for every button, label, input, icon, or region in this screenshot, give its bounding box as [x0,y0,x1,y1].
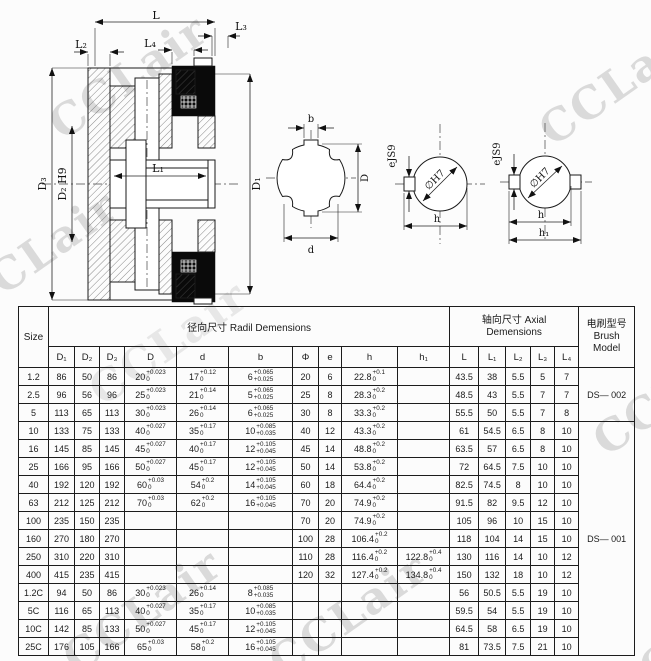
dim-label-L: L [152,9,160,22]
value-cell: 19 [531,584,555,602]
value-cell: 7.5 [506,638,531,656]
dim-label-L4: L₄ [144,37,156,50]
value-cell: 85 [75,620,100,638]
value-cell: 20 [319,512,342,530]
value-cell: 132 [479,566,506,584]
value-cell [398,620,450,638]
value-cell: 133 [100,620,125,638]
value-cell: 26+0.140 [177,584,229,602]
value-cell [342,584,398,602]
value-cell [293,638,319,656]
value-cell: 166 [100,458,125,476]
value-cell [177,548,229,566]
value-cell [293,620,319,638]
value-cell: 176 [49,638,75,656]
value-cell: 50+0.0270 [125,620,177,638]
value-cell: 55.5 [450,404,479,422]
value-cell: 5.5 [506,584,531,602]
value-cell: 82.5 [450,476,479,494]
size-cell: 16 [19,440,49,458]
table-row: 101337513340+0.027035+0.17010+0.085+0.03… [19,422,635,440]
value-cell: 40 [293,422,319,440]
value-cell: 18 [506,566,531,584]
column-header: h [342,347,398,368]
table-row: 10C1428513350+0.027045+0.17012+0.105+0.0… [19,620,635,638]
value-cell: 130 [450,548,479,566]
dim-label-h: h [538,210,545,221]
dim-label-D: D [360,174,371,182]
size-cell: 10C [19,620,49,638]
value-cell: 20 [319,494,342,512]
value-cell: 6+0.065+0.025 [229,404,293,422]
value-cell: 14 [506,548,531,566]
value-cell: 6.5 [506,422,531,440]
value-cell: 220 [75,548,100,566]
value-cell [229,512,293,530]
value-cell: 133 [100,422,125,440]
value-cell: 28 [319,530,342,548]
value-cell: 8+0.085+0.035 [229,584,293,602]
value-cell: 74.9+0.20 [342,512,398,530]
value-cell: 54.5 [479,422,506,440]
size-cell: 5C [19,602,49,620]
value-cell [229,548,293,566]
table-row: 5C1166511340+0.027035+0.17010+0.085+0.03… [19,602,635,620]
value-cell: 113 [100,602,125,620]
header-axial-line1: 轴向尺寸 Axial [482,315,546,326]
value-cell: 10 [555,530,579,548]
value-cell: 134.8+0.40 [398,566,450,584]
table-row: 25031022031011028116.4+0.20122.8+0.40130… [19,548,635,566]
value-cell [125,512,177,530]
value-cell: 17+0.120 [177,368,229,386]
table-row: 4019212019260+0.03054+0.2014+0.105+0.045… [19,476,635,494]
table-row: 2.596569625+0.023021+0.1405+0.065+0.0252… [19,386,635,404]
size-cell: 1.2C [19,584,49,602]
value-cell: 120 [293,566,319,584]
value-cell: 56 [450,584,479,602]
value-cell: 10 [506,512,531,530]
table-row: 16027018027010028106.4+0.20118104141510 [19,530,635,548]
size-cell: 2.5 [19,386,49,404]
value-cell [125,530,177,548]
value-cell: 10 [555,458,579,476]
value-cell: 30 [293,404,319,422]
value-cell: 12 [555,548,579,566]
value-cell: 113 [49,404,75,422]
value-cell [293,602,319,620]
value-cell: 65 [75,602,100,620]
brush-braid-lower [181,260,196,272]
dim-label-D3: D₃ [36,177,49,190]
value-cell: 48.8+0.20 [342,440,398,458]
column-header: L₄ [555,347,579,368]
sliding-sleeve [126,140,146,228]
value-cell [342,638,398,656]
value-cell: 28.3+0.20 [342,386,398,404]
value-cell [398,386,450,404]
value-cell: 86 [100,368,125,386]
value-cell: 5+0.065+0.025 [229,386,293,404]
value-cell: 56 [75,386,100,404]
value-cell [177,530,229,548]
value-cell: 50 [479,404,506,422]
value-cell: 10 [555,602,579,620]
web-section-lower [110,220,135,282]
dimensions-table: Size 径向尺寸 Radil Demensions 轴向尺寸 Axial De… [18,306,635,656]
value-cell: 104 [479,530,506,548]
value-cell: 270 [100,530,125,548]
value-cell [229,566,293,584]
keyway-bore-drawing-double: ∅H7 eJS9 h h₁ [492,118,627,273]
column-header: Φ [293,347,319,368]
value-cell: 118 [450,530,479,548]
value-cell: 45 [293,440,319,458]
value-cell: 5.5 [506,368,531,386]
value-cell: 35+0.170 [177,422,229,440]
value-cell [398,584,450,602]
value-cell: 12 [555,566,579,584]
dim-label-h: h [434,214,441,225]
header-brush-model: 电刷型号 Brush Model [579,307,635,368]
value-cell: 10 [531,458,555,476]
value-cell: 8 [319,386,342,404]
value-cell: 10 [555,512,579,530]
value-cell: 150 [75,512,100,530]
value-cell [398,602,450,620]
value-cell: 85 [75,440,100,458]
value-cell [125,548,177,566]
value-cell: 45+0.170 [177,458,229,476]
value-cell: 43.5 [450,368,479,386]
value-cell: 10 [555,440,579,458]
header-axial: 轴向尺寸 Axial Demensions [450,307,579,347]
value-cell: 235 [49,512,75,530]
value-cell: 38 [479,368,506,386]
header-brush-line1: 电刷型号 [587,319,627,330]
coupling-datasheet-page: CCLair CCLair CCLair CCLair CCLair CCLai… [0,0,651,661]
value-cell: 14+0.105+0.045 [229,476,293,494]
value-cell: 54 [479,602,506,620]
dim-label-h1: h₁ [539,228,549,239]
value-cell: 192 [49,476,75,494]
size-cell: 25 [19,458,49,476]
value-cell: 35+0.170 [177,602,229,620]
column-header: D₃ [100,347,125,368]
value-cell: 54+0.20 [177,476,229,494]
value-cell: 82 [479,494,506,512]
value-cell: 50.5 [479,584,506,602]
value-cell: 33.3+0.20 [342,404,398,422]
table-row: 40041523541512032127.4+0.20134.8+0.40150… [19,566,635,584]
size-cell: 250 [19,548,49,566]
value-cell: 270 [49,530,75,548]
web-section-upper [110,86,135,148]
brush-braid-upper [181,96,196,108]
value-cell: 25+0.0230 [125,386,177,404]
value-cell: 8 [555,404,579,422]
keyway-tab-right [570,175,581,189]
value-cell [398,638,450,656]
value-cell [398,422,450,440]
value-cell: 150 [450,566,479,584]
value-cell: 19 [531,620,555,638]
value-cell: 6.5 [506,620,531,638]
column-header: b [229,347,293,368]
value-cell: 50 [75,584,100,602]
value-cell: 8 [531,422,555,440]
value-cell: 57 [479,440,506,458]
value-cell: 15 [531,512,555,530]
value-cell: 7.5 [506,458,531,476]
dim-label-L1: L₁ [152,162,164,175]
keyway-bore-drawing-single: ∅H7 eJS9 h [383,118,501,263]
value-cell: 100 [293,530,319,548]
value-cell [398,368,450,386]
value-cell [398,404,450,422]
flange-section [88,68,110,300]
header-axial-line2: Demensions [486,327,542,338]
value-cell: 116.4+0.20 [342,548,398,566]
value-cell: 50 [293,458,319,476]
size-cell: 160 [19,530,49,548]
value-cell: 12+0.105+0.045 [229,620,293,638]
value-cell: 96 [479,512,506,530]
value-cell: 16+0.105+0.045 [229,638,293,656]
value-cell: 95 [75,458,100,476]
value-cell: 116 [49,602,75,620]
value-cell: 59.5 [450,602,479,620]
value-cell: 74.9+0.20 [342,494,398,512]
value-cell [229,530,293,548]
bottom-cap [194,298,212,304]
value-cell [177,566,229,584]
value-cell: 75 [75,422,100,440]
value-cell: 86 [49,368,75,386]
value-cell: 25 [293,386,319,404]
value-cell: 192 [100,476,125,494]
size-cell: 400 [19,566,49,584]
value-cell: 18 [319,476,342,494]
value-cell: 30+0.0230 [125,584,177,602]
value-cell: 212 [100,494,125,512]
table-row: 51136511330+0.023026+0.1406+0.065+0.0253… [19,404,635,422]
value-cell [125,566,177,584]
value-cell: 65+0.030 [125,638,177,656]
value-cell: 43.3+0.20 [342,422,398,440]
column-header: e [319,347,342,368]
dim-label-L2: L₂ [75,38,87,51]
value-cell: 10 [555,584,579,602]
value-cell: 40+0.0270 [125,602,177,620]
value-cell: 212 [49,494,75,512]
value-cell [293,584,319,602]
value-cell: 14 [319,440,342,458]
value-cell: 12 [531,494,555,512]
value-cell: 8 [531,440,555,458]
column-header: h₁ [398,347,450,368]
value-cell: 145 [49,440,75,458]
value-cell [319,602,342,620]
value-cell: 6.5 [506,440,531,458]
value-cell: 142 [49,620,75,638]
value-cell: 9.5 [506,494,531,512]
brush-model-cell: DS— 002 [579,368,635,422]
size-cell: 63 [19,494,49,512]
value-cell [319,638,342,656]
web-section-upper2 [159,74,172,148]
value-cell: 74.5 [479,476,506,494]
value-cell: 8 [319,404,342,422]
value-cell: 16+0.105+0.045 [229,494,293,512]
table-row: 6321212521270+0.03062+0.2016+0.105+0.045… [19,494,635,512]
value-cell: 63.5 [450,440,479,458]
column-header: L₁ [479,347,506,368]
table-row: 1.2C94508630+0.023026+0.1408+0.085+0.035… [19,584,635,602]
value-cell: 10+0.085+0.035 [229,422,293,440]
value-cell [342,620,398,638]
keyway-label: eJS9 [387,144,398,167]
value-cell: 19 [531,602,555,620]
value-cell: 58 [479,620,506,638]
value-cell: 64.5 [450,620,479,638]
value-cell: 14 [506,530,531,548]
value-cell: 48.5 [450,386,479,404]
value-cell: 415 [49,566,75,584]
header-brush-line2: Brush Model [593,331,620,354]
value-cell: 113 [100,404,125,422]
value-cell: 10 [531,476,555,494]
value-cell: 12+0.105+0.045 [229,440,293,458]
value-cell: 61 [450,422,479,440]
value-cell: 65 [75,404,100,422]
table-row: 161458514545+0.027040+0.17012+0.105+0.04… [19,440,635,458]
value-cell: 86 [100,584,125,602]
cover-section-lower [198,220,215,252]
value-cell: 21 [531,638,555,656]
value-cell: 21+0.140 [177,386,229,404]
value-cell: 30+0.0230 [125,404,177,422]
size-cell: 1.2 [19,368,49,386]
value-cell: 145 [100,440,125,458]
column-header: D₂ [75,347,100,368]
value-cell: 235 [75,566,100,584]
value-cell: 10 [531,566,555,584]
value-cell: 64.5 [479,458,506,476]
value-cell: 125 [75,494,100,512]
brush-model-cell: DS— 001 [579,422,635,656]
dim-label-L3: L₃ [235,20,247,33]
size-cell: 100 [19,512,49,530]
value-cell: 7 [531,386,555,404]
table-row: 100235150235702074.9+0.2010596101510 [19,512,635,530]
column-header: L₂ [506,347,531,368]
value-cell: 5 [531,368,555,386]
section-view-drawing: L₁ L L₂ L₄ L₃ D₃ D₂ H9 D₁ [38,8,268,308]
size-cell: 25C [19,638,49,656]
value-cell: 5.5 [506,404,531,422]
value-cell: 45+0.0270 [125,440,177,458]
value-cell: 20+0.0230 [125,368,177,386]
value-cell: 310 [49,548,75,566]
value-cell: 81 [450,638,479,656]
value-cell: 14 [319,458,342,476]
value-cell: 58+0.20 [177,638,229,656]
size-cell: 5 [19,404,49,422]
value-cell: 7 [555,386,579,404]
column-header: d [177,347,229,368]
header-radial: 径向尺寸 Radil Demensions [49,307,450,347]
value-cell [398,458,450,476]
dim-label-d: d [308,245,315,256]
value-cell: 20 [293,368,319,386]
value-cell: 10 [555,620,579,638]
value-cell: 70 [293,494,319,512]
value-cell: 110 [293,548,319,566]
column-header: D₁ [49,347,75,368]
value-cell: 91.5 [450,494,479,512]
value-cell: 166 [49,458,75,476]
value-cell [398,476,450,494]
value-cell: 72 [450,458,479,476]
value-cell: 53.8+0.20 [342,458,398,476]
value-cell [319,620,342,638]
value-cell [398,530,450,548]
value-cell: 10 [555,422,579,440]
value-cell: 133 [49,422,75,440]
keyway-label: eJS9 [492,142,503,165]
value-cell: 10 [531,548,555,566]
value-cell: 5.5 [506,602,531,620]
value-cell: 22.8+0.10 [342,368,398,386]
seal-insert-upper [176,70,195,94]
value-cell: 40+0.0270 [125,422,177,440]
table-row: 25C17610516665+0.03058+0.2016+0.105+0.04… [19,638,635,656]
value-cell [177,512,229,530]
value-cell: 10 [555,476,579,494]
value-cell: 70 [293,512,319,530]
value-cell: 94 [49,584,75,602]
value-cell: 8 [506,476,531,494]
top-cap [194,58,212,66]
value-cell [319,584,342,602]
value-cell [342,602,398,620]
value-cell: 105 [75,638,100,656]
value-cell: 6+0.065+0.025 [229,368,293,386]
value-cell: 62+0.20 [177,494,229,512]
value-cell: 73.5 [479,638,506,656]
value-cell: 12+0.105+0.045 [229,458,293,476]
value-cell: 70+0.030 [125,494,177,512]
column-header: D [125,347,177,368]
value-cell: 105 [450,512,479,530]
value-cell: 106.4+0.20 [342,530,398,548]
value-cell: 64.4+0.20 [342,476,398,494]
value-cell: 60 [293,476,319,494]
spline-outline [277,140,345,216]
value-cell: 310 [100,548,125,566]
value-cell: 26+0.140 [177,404,229,422]
value-cell: 96 [49,386,75,404]
value-cell: 120 [75,476,100,494]
value-cell: 10+0.085+0.035 [229,602,293,620]
value-cell: 10 [555,638,579,656]
value-cell: 7 [531,404,555,422]
value-cell: 166 [100,638,125,656]
keyway-tab-left [509,175,520,189]
value-cell: 116 [479,548,506,566]
value-cell [398,494,450,512]
